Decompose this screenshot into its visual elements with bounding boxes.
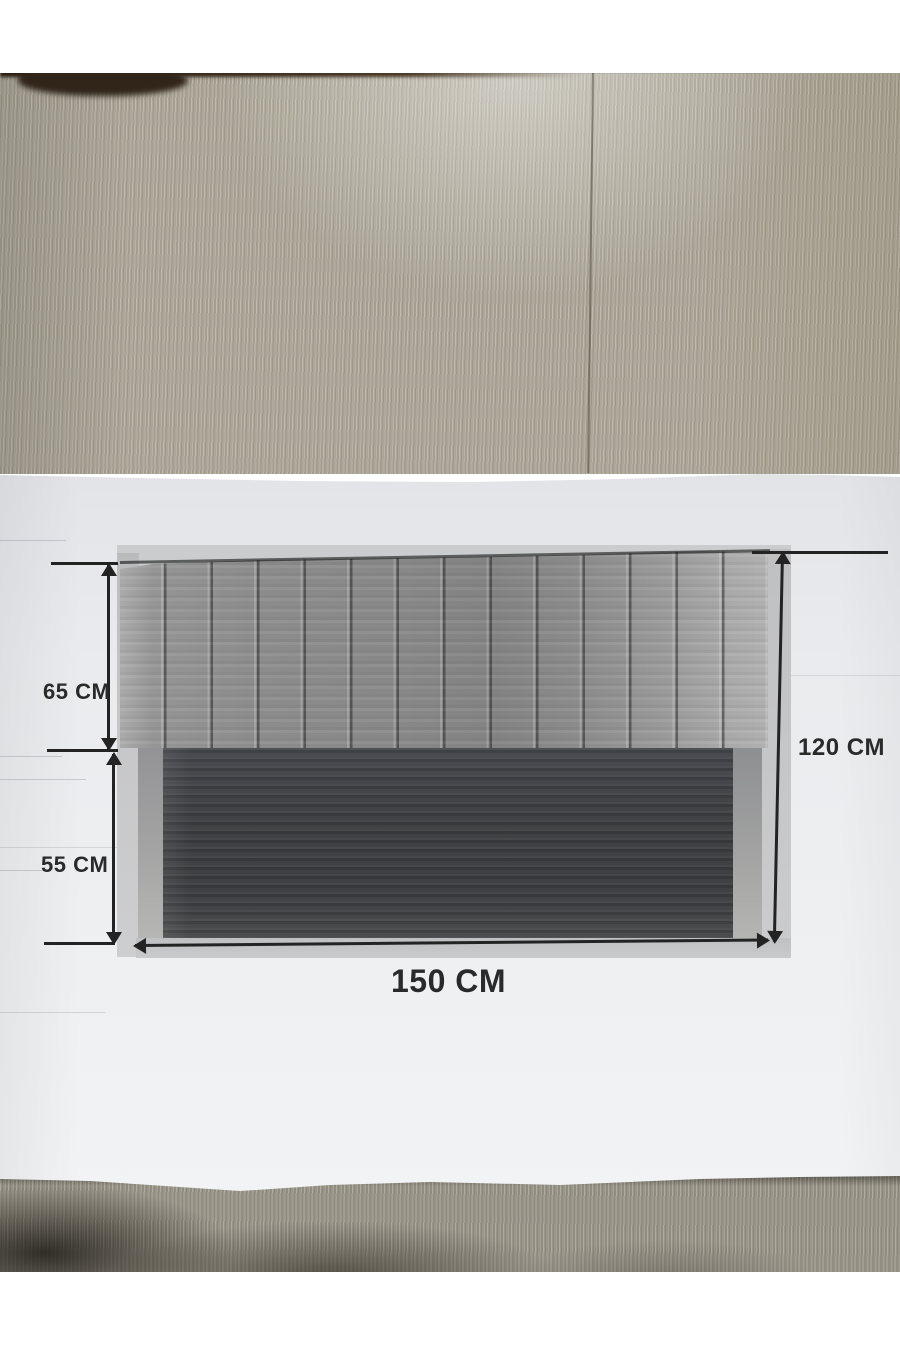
paper-crease [0,870,44,871]
white-margin-top [0,0,900,73]
paper-crease [0,779,86,780]
paper-crease [0,756,62,757]
extension-line-top-right [752,551,888,554]
dimension-label-120: 120 CM [798,734,885,762]
extension-line-bottom-left [44,942,115,945]
dimension-label-65: 65 CM [43,679,110,705]
wood-floor-lower [0,1176,900,1272]
white-margin-bottom [0,1272,900,1350]
fabric-left-skirt [138,748,164,938]
headboard-fabric [120,551,768,748]
dimension-line-65 [107,565,110,749]
paper-crease [788,675,900,676]
wood-floor-upper [0,73,900,474]
arrowhead-up-icon [774,551,790,564]
dimension-label-55: 55 CM [41,852,108,878]
arrowhead-down-icon [766,931,782,944]
base-panel [163,748,733,938]
paper-crease [0,1012,105,1013]
arrowhead-up-icon [106,752,122,765]
dimension-label-150: 150 CM [391,963,506,1000]
floor-photo: 65 CM 55 CM 150 CM 120 CM [0,73,900,1272]
photo-canvas: 65 CM 55 CM 150 CM 120 CM [0,0,900,1350]
dimension-line-55 [112,754,115,943]
arrowhead-up-icon [101,563,117,576]
floor-plank-seam [587,73,594,473]
paper-crease [0,540,66,541]
arrowhead-left-icon [133,937,146,953]
paper-sheet: 65 CM 55 CM 150 CM 120 CM [0,473,900,1195]
